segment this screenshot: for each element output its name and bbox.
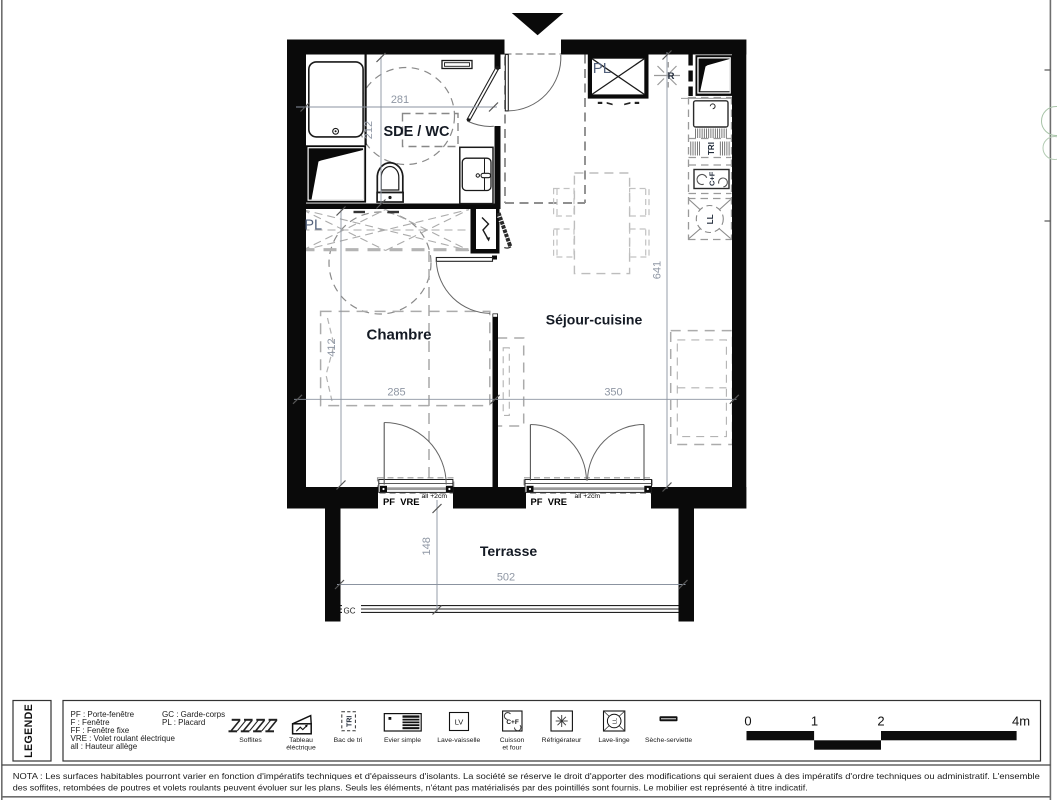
svg-text:Réfrigérateur: Réfrigérateur [542,737,582,744]
svg-text:PL: PL [593,60,611,77]
svg-text:C+F: C+F [506,719,518,726]
svg-text:Sèche-serviette: Sèche-serviette [645,737,692,744]
svg-text:2: 2 [877,714,884,729]
svg-text:PL : Placard: PL : Placard [162,718,205,727]
svg-text:4m: 4m [1012,714,1030,729]
svg-text:212: 212 [363,121,375,139]
svg-text:GC: GC [344,607,356,616]
svg-text:Chambre: Chambre [366,327,431,344]
svg-text:Bac de tri: Bac de tri [334,737,363,744]
svg-text:TRI: TRI [346,716,353,727]
svg-text:all +2cm: all +2cm [422,493,448,500]
svg-text:LV: LV [455,717,464,726]
svg-text:PL: PL [304,218,322,234]
svg-text:285: 285 [387,386,405,398]
svg-text:all +2cm: all +2cm [575,493,601,500]
svg-text:LL: LL [612,718,618,724]
svg-text:502: 502 [497,572,515,584]
svg-text:NOTA : Les surfaces habitables: NOTA : Les surfaces habitables pourront … [13,772,1040,781]
svg-text:LL: LL [706,214,715,224]
svg-text:éléctrique: éléctrique [286,744,316,751]
svg-text:Cuisson: Cuisson [500,737,525,744]
svg-text:0: 0 [744,714,751,729]
svg-text:PF VRE: PF VRE [531,496,567,507]
svg-text:Terrasse: Terrasse [480,543,538,559]
svg-text:Séjour-cuisine: Séjour-cuisine [546,312,643,328]
svg-text:148: 148 [421,537,433,555]
svg-text:all : Hauteur allège: all : Hauteur allège [71,742,138,751]
svg-text:des soffites, retombées de pou: des soffites, retombées de poutres et vo… [13,784,808,793]
svg-text:281: 281 [391,94,409,106]
svg-text:Tableau: Tableau [289,737,313,744]
svg-text:PF VRE: PF VRE [383,496,419,507]
svg-text:TRI: TRI [707,142,716,155]
svg-text:R: R [668,71,675,82]
svg-text:412: 412 [326,338,338,356]
svg-text:et four: et four [502,744,522,751]
svg-text:641: 641 [651,261,663,279]
svg-text:LEGENDE: LEGENDE [23,704,35,758]
svg-text:Soffites: Soffites [239,737,262,744]
svg-text:C+F: C+F [707,171,716,186]
svg-text:350: 350 [604,387,622,399]
svg-text:1: 1 [811,714,818,729]
svg-text:Evier simple: Evier simple [384,737,421,744]
svg-text:Lave-vaisselle: Lave-vaisselle [437,737,480,744]
svg-text:SDE / WC: SDE / WC [383,124,450,140]
svg-text:Lave-linge: Lave-linge [598,737,630,744]
